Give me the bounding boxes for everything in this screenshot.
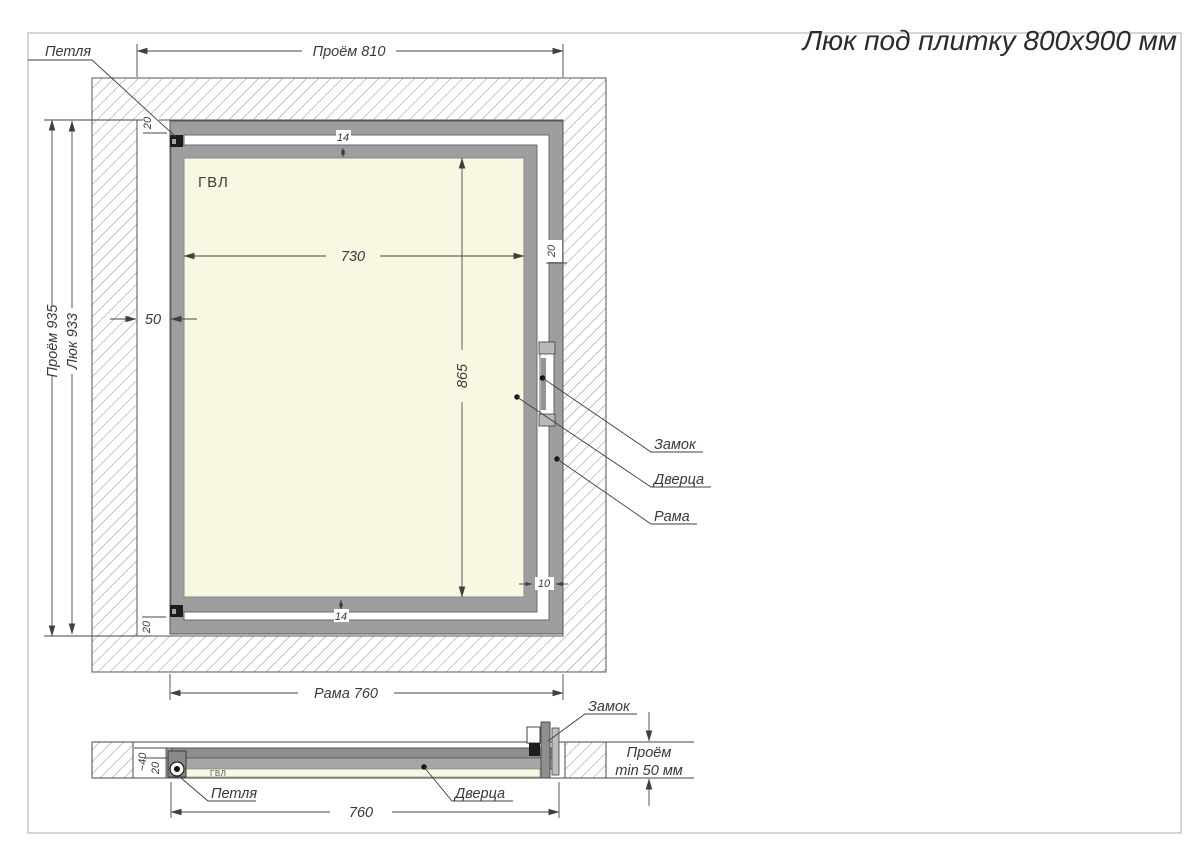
hinge-bottom <box>170 605 183 617</box>
dim-depth-panel-text: 20 <box>150 761 162 775</box>
dim-frame-width: Рама 760 <box>170 674 563 702</box>
gvl-label: ГВЛ <box>198 174 229 191</box>
wall-block-left <box>92 742 133 778</box>
label-door: Дверца <box>652 472 704 488</box>
technical-drawing: ГВЛ Проём 810 Проём 935 Люк 933 7 <box>0 0 1200 852</box>
dim-opening-width-text: Проём 810 <box>313 44 386 60</box>
dim-panel-height-text: 865 <box>455 363 471 388</box>
label-door-section: Дверца <box>453 786 505 802</box>
dim-opening-depth-line2: min 50 мм <box>615 763 682 779</box>
dim-opening-depth: Проём min 50 мм <box>615 712 682 806</box>
front-view: ГВЛ Проём 810 Проём 935 Люк 933 7 <box>28 44 711 702</box>
dim-panel-width-text: 730 <box>341 249 365 265</box>
dim-gap-top-text: 14 <box>337 132 349 144</box>
dim-hinge-bottom-text: 20 <box>141 620 153 634</box>
dim-frame-width-text: Рама 760 <box>314 686 378 702</box>
dim-opening-depth-line1: Проём <box>627 745 672 761</box>
wall-block-right <box>565 742 606 778</box>
dim-hinge-top-text: 20 <box>142 116 154 130</box>
dim-section-width-text: 760 <box>349 805 373 821</box>
dim-hatch-height-text: Люк 933 <box>65 313 81 370</box>
dim-side-gap-text: 50 <box>145 312 161 328</box>
gvl-label-section: ГВЛ <box>210 769 226 778</box>
gvl-panel <box>184 158 524 597</box>
dim-opening-width: Проём 810 <box>137 44 563 77</box>
dim-gap-bottom-text: 14 <box>335 611 347 623</box>
hinge-section <box>168 751 186 777</box>
label-lock-section: Замок <box>588 699 631 715</box>
callout-hinge-section: Петля <box>181 778 257 802</box>
dim-opening-height-text: Проём 935 <box>45 304 61 378</box>
callout-lock-section: Замок <box>548 699 637 741</box>
drawing-page: ГВЛ Проём 810 Проём 935 Люк 933 7 <box>0 0 1200 852</box>
label-hinge: Петля <box>45 44 91 60</box>
label-frame: Рама <box>654 509 690 525</box>
hinge-top <box>170 135 183 147</box>
label-hinge-section: Петля <box>211 786 257 802</box>
dim-frame-profile-text: 20 <box>546 244 558 258</box>
dim-lock-gap-text: 10 <box>538 578 551 590</box>
drawing-title: Люк под плитку 800х900 мм <box>801 25 1177 56</box>
dim-hatch-height: Люк 933 <box>65 121 81 634</box>
label-lock: Замок <box>654 437 697 453</box>
section-view: ГВЛ 760 ~40 20 <box>92 699 694 821</box>
dim-depth-total-text: ~40 <box>137 752 149 772</box>
